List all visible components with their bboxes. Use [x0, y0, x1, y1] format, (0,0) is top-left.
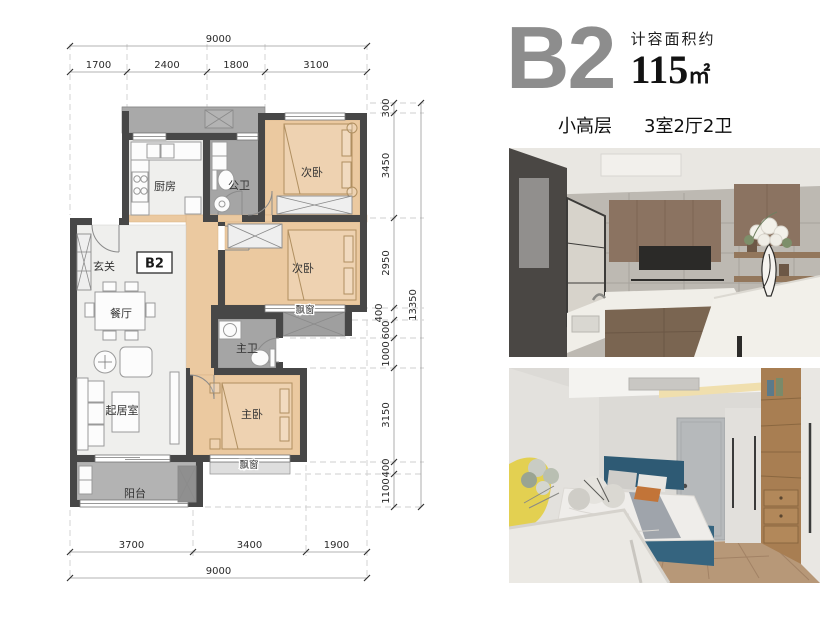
bedroom-photo	[509, 368, 820, 583]
label-entry: 玄关	[93, 259, 115, 273]
dim-right-6: 1000	[381, 341, 392, 366]
area-block: 计容面积约 115㎡	[631, 16, 716, 91]
building-type: 小高层	[558, 112, 612, 138]
dim-right-total: 13350	[408, 289, 419, 321]
label-bay-window-bottom: 飘窗	[239, 459, 258, 471]
area-unit: ㎡	[688, 64, 710, 89]
dim-top-3: 1800	[223, 60, 248, 71]
area-label: 计容面积约	[631, 28, 716, 49]
rooms-spec: 3室2厅2卫	[644, 112, 732, 138]
dim-bottom-3: 1900	[324, 540, 349, 551]
dim-right-3: 2950	[381, 250, 392, 275]
dim-bottom-total: 9000	[206, 566, 231, 577]
dim-right-2: 3450	[381, 153, 392, 178]
page: 厨房 公卫 次卧 次卧 玄关 餐厅 起居室 主卧 主卫 阳台 飘窗 飘窗 B2	[0, 0, 824, 638]
sink	[572, 316, 599, 332]
dim-top-1: 1700	[86, 60, 111, 71]
dim-bottom-1: 3700	[119, 540, 144, 551]
appliance-panel	[519, 178, 549, 268]
label-bedroom-top: 次卧	[301, 165, 323, 179]
dim-right-1: 300	[381, 98, 392, 117]
dim-bottom-2: 3400	[237, 540, 262, 551]
dim-right-5: 600	[381, 320, 392, 339]
unit-header: B2 计容面积约 115㎡	[506, 16, 824, 100]
range-hood	[639, 246, 711, 270]
dim-right-4: 400	[374, 303, 385, 322]
dim-top-4: 3100	[303, 60, 328, 71]
dim-top-2: 2400	[154, 60, 179, 71]
label-bay-window-mid: 飘窗	[295, 304, 314, 316]
label-master-bath: 主卫	[236, 342, 258, 355]
ac-vent	[629, 378, 699, 390]
label-kitchen: 厨房	[154, 180, 176, 193]
dim-right-9: 1100	[381, 478, 392, 503]
ceiling-vent	[601, 154, 681, 176]
unit-subheader: 小高层 3室2厅2卫	[506, 112, 824, 138]
unit-info-panel: B2 计容面积约 115㎡ 小高层 3室2厅2卫	[506, 16, 824, 138]
label-master-bedroom: 主卧	[241, 408, 263, 421]
label-bedroom-mid: 次卧	[292, 261, 314, 275]
label-living: 起居室	[106, 403, 139, 417]
dim-right-7: 3150	[381, 402, 392, 427]
dim-top-total: 9000	[206, 34, 231, 45]
label-dining: 餐厅	[110, 306, 132, 320]
kitchen-photo	[509, 148, 820, 357]
area-value: 115㎡	[631, 49, 716, 91]
label-public-bath: 公卫	[228, 179, 250, 192]
unit-name: B2	[506, 16, 615, 100]
unit-badge: B2	[145, 257, 164, 272]
label-balcony: 阳台	[124, 486, 146, 500]
dim-right-8: 400	[381, 458, 392, 477]
floor-plan: 厨房 公卫 次卧 次卧 玄关 餐厅 起居室 主卧 主卫 阳台 飘窗 飘窗 B2	[0, 0, 460, 638]
